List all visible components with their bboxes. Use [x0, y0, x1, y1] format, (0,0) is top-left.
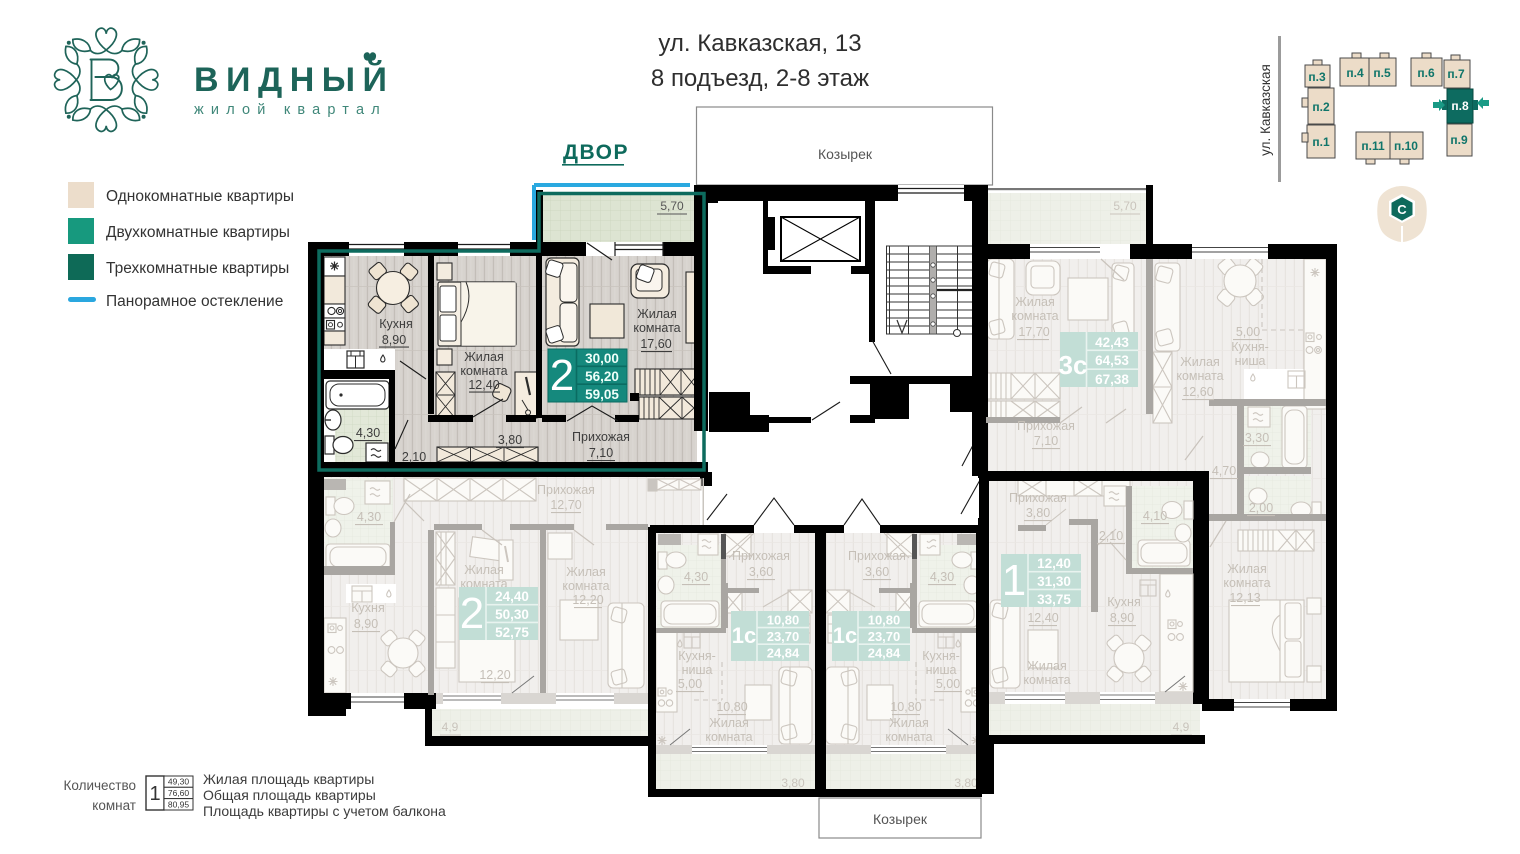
svg-text:3,80: 3,80: [498, 433, 522, 447]
svg-text:8 подъезд, 2-8 этаж: 8 подъезд, 2-8 этаж: [651, 65, 869, 92]
svg-text:комната: комната: [1176, 369, 1223, 383]
svg-text:12,70: 12,70: [550, 498, 581, 512]
svg-text:комната: комната: [1023, 673, 1070, 687]
svg-text:Прихожая: Прихожая: [1017, 419, 1075, 433]
svg-text:Жилая: Жилая: [1180, 355, 1220, 369]
svg-text:п.6: п.6: [1417, 66, 1435, 80]
svg-text:5,70: 5,70: [660, 199, 684, 213]
svg-text:п.4: п.4: [1346, 66, 1364, 80]
svg-text:Жилая: Жилая: [1015, 295, 1055, 309]
svg-text:5,70: 5,70: [1113, 199, 1137, 213]
svg-text:2: 2: [460, 589, 484, 638]
svg-text:Трехкомнатные квартиры: Трехкомнатные квартиры: [106, 260, 289, 277]
svg-text:п.8: п.8: [1451, 99, 1469, 113]
svg-text:33,75: 33,75: [1037, 592, 1071, 607]
svg-text:56,20: 56,20: [585, 369, 619, 384]
svg-text:5,00: 5,00: [678, 677, 702, 691]
svg-text:3,80: 3,80: [1026, 506, 1050, 520]
svg-text:12,60: 12,60: [1182, 385, 1213, 399]
svg-text:2,10: 2,10: [402, 450, 426, 464]
svg-text:С: С: [1397, 202, 1407, 217]
svg-text:12,20: 12,20: [479, 668, 510, 682]
svg-text:комната: комната: [705, 730, 752, 744]
svg-text:Кухня-: Кухня-: [1231, 340, 1269, 354]
svg-text:5,00: 5,00: [1236, 325, 1260, 339]
svg-text:3,30: 3,30: [1245, 431, 1269, 445]
svg-text:4,9: 4,9: [442, 720, 459, 734]
svg-text:4,70: 4,70: [1212, 464, 1236, 478]
svg-text:Двухкомнатные квартиры: Двухкомнатные квартиры: [106, 224, 290, 241]
svg-text:Жилая площадь квартиры: Жилая площадь квартиры: [203, 771, 374, 787]
svg-text:ВИДНЫЙ: ВИДНЫЙ: [194, 60, 395, 99]
svg-text:комната: комната: [885, 730, 932, 744]
svg-text:п.1: п.1: [1312, 135, 1330, 149]
svg-text:42,43: 42,43: [1095, 335, 1129, 350]
svg-text:8,90: 8,90: [354, 617, 378, 631]
svg-text:2: 2: [550, 351, 574, 400]
svg-text:24,84: 24,84: [767, 646, 800, 661]
svg-text:комната: комната: [1011, 309, 1058, 323]
svg-text:7,10: 7,10: [1034, 434, 1058, 448]
svg-text:Козырек: Козырек: [818, 146, 873, 162]
svg-text:24,84: 24,84: [868, 646, 901, 661]
svg-text:3,80: 3,80: [954, 776, 978, 790]
svg-text:Кухня: Кухня: [1107, 595, 1140, 609]
svg-text:ДВОР: ДВОР: [563, 141, 629, 164]
svg-text:Количество: Количество: [64, 778, 137, 793]
svg-text:Кухня-: Кухня-: [922, 649, 960, 663]
svg-text:Кухня: Кухня: [379, 317, 412, 331]
svg-text:10,80: 10,80: [716, 700, 747, 714]
svg-text:12,40: 12,40: [468, 378, 499, 392]
svg-text:64,53: 64,53: [1095, 353, 1129, 368]
svg-text:3,60: 3,60: [865, 565, 889, 579]
svg-text:Жилая: Жилая: [464, 350, 504, 364]
svg-text:Однокомнатные квартиры: Однокомнатные квартиры: [106, 188, 294, 205]
svg-text:12,13: 12,13: [1229, 591, 1260, 605]
svg-text:7,10: 7,10: [589, 446, 613, 460]
svg-text:ул. Кавказская: ул. Кавказская: [1258, 64, 1273, 156]
svg-text:п.5: п.5: [1373, 66, 1391, 80]
svg-text:комната: комната: [633, 321, 680, 335]
svg-text:комната: комната: [562, 579, 609, 593]
svg-text:1: 1: [1002, 556, 1026, 605]
svg-text:ул. Кавказская, 13: ул. Кавказская, 13: [658, 30, 861, 57]
svg-text:п.10: п.10: [1394, 139, 1418, 153]
svg-text:8,90: 8,90: [1110, 611, 1134, 625]
svg-text:Козырек: Козырек: [873, 811, 928, 827]
svg-text:50,30: 50,30: [495, 607, 529, 622]
svg-text:Жилая: Жилая: [1227, 562, 1267, 576]
svg-text:ниша: ниша: [1235, 354, 1266, 368]
svg-text:Жилая: Жилая: [889, 716, 929, 730]
svg-text:12,40: 12,40: [1027, 611, 1058, 625]
svg-text:12,40: 12,40: [1037, 556, 1071, 571]
svg-text:4,9: 4,9: [1173, 720, 1190, 734]
svg-text:Площадь квартиры с учетом балк: Площадь квартиры с учетом балкона: [203, 803, 446, 819]
svg-text:Кухня: Кухня: [351, 601, 384, 615]
svg-text:3,80: 3,80: [781, 776, 805, 790]
svg-text:10,80: 10,80: [890, 700, 921, 714]
svg-text:п.9: п.9: [1450, 133, 1468, 147]
svg-text:2,10: 2,10: [1099, 529, 1123, 543]
svg-text:52,75: 52,75: [495, 625, 529, 640]
svg-text:10,80: 10,80: [767, 613, 800, 628]
svg-text:жилой квартал: жилой квартал: [194, 102, 387, 118]
svg-text:ниша: ниша: [926, 663, 957, 677]
svg-text:п.3: п.3: [1308, 70, 1326, 84]
svg-text:Общая площадь квартиры: Общая площадь квартиры: [203, 787, 376, 803]
svg-text:30,00: 30,00: [585, 351, 619, 366]
svg-text:23,70: 23,70: [868, 629, 901, 644]
svg-text:10,80: 10,80: [868, 613, 901, 628]
svg-text:76,60: 76,60: [168, 788, 190, 798]
svg-text:12,20: 12,20: [572, 593, 603, 607]
svg-text:4,30: 4,30: [930, 570, 954, 584]
svg-text:3с: 3с: [1059, 350, 1088, 380]
svg-text:Прихожая: Прихожая: [732, 549, 790, 563]
svg-text:67,38: 67,38: [1095, 372, 1129, 387]
svg-text:2,00: 2,00: [1249, 501, 1273, 515]
svg-text:1: 1: [149, 783, 160, 805]
svg-text:комната: комната: [460, 364, 507, 378]
svg-text:80,95: 80,95: [168, 800, 190, 810]
svg-text:4,10: 4,10: [1143, 509, 1167, 523]
svg-text:п.2: п.2: [1312, 100, 1330, 114]
svg-text:8,90: 8,90: [382, 333, 406, 347]
svg-text:17,60: 17,60: [640, 337, 671, 351]
svg-text:Жилая: Жилая: [637, 307, 677, 321]
svg-text:комната: комната: [1223, 576, 1270, 590]
svg-text:ниша: ниша: [682, 663, 713, 677]
svg-text:п.11: п.11: [1361, 139, 1385, 153]
svg-text:1с: 1с: [833, 623, 857, 648]
svg-text:3,60: 3,60: [749, 565, 773, 579]
svg-text:Панорамное остекление: Панорамное остекление: [106, 293, 283, 310]
svg-text:Прихожая: Прихожая: [537, 483, 595, 497]
svg-text:Прихожая: Прихожая: [572, 430, 630, 444]
svg-text:Кухня-: Кухня-: [678, 649, 716, 663]
svg-text:4,30: 4,30: [684, 570, 708, 584]
svg-text:23,70: 23,70: [767, 629, 800, 644]
svg-text:Прихожая: Прихожая: [1009, 491, 1067, 505]
svg-text:17,70: 17,70: [1018, 325, 1049, 339]
svg-text:4,30: 4,30: [356, 426, 380, 440]
svg-text:п.7: п.7: [1447, 67, 1465, 81]
svg-text:4,30: 4,30: [357, 510, 381, 524]
svg-text:49,30: 49,30: [168, 777, 190, 787]
svg-text:5,00: 5,00: [936, 677, 960, 691]
svg-text:Жилая: Жилая: [1027, 659, 1067, 673]
svg-text:24,40: 24,40: [495, 589, 529, 604]
svg-text:31,30: 31,30: [1037, 574, 1071, 589]
svg-text:1с: 1с: [732, 623, 756, 648]
svg-text:Прихожая: Прихожая: [848, 549, 906, 563]
svg-text:Жилая: Жилая: [566, 565, 606, 579]
svg-text:59,05: 59,05: [585, 387, 619, 402]
svg-text:комнат: комнат: [92, 798, 136, 813]
svg-text:Жилая: Жилая: [464, 563, 504, 577]
svg-text:Жилая: Жилая: [709, 716, 749, 730]
